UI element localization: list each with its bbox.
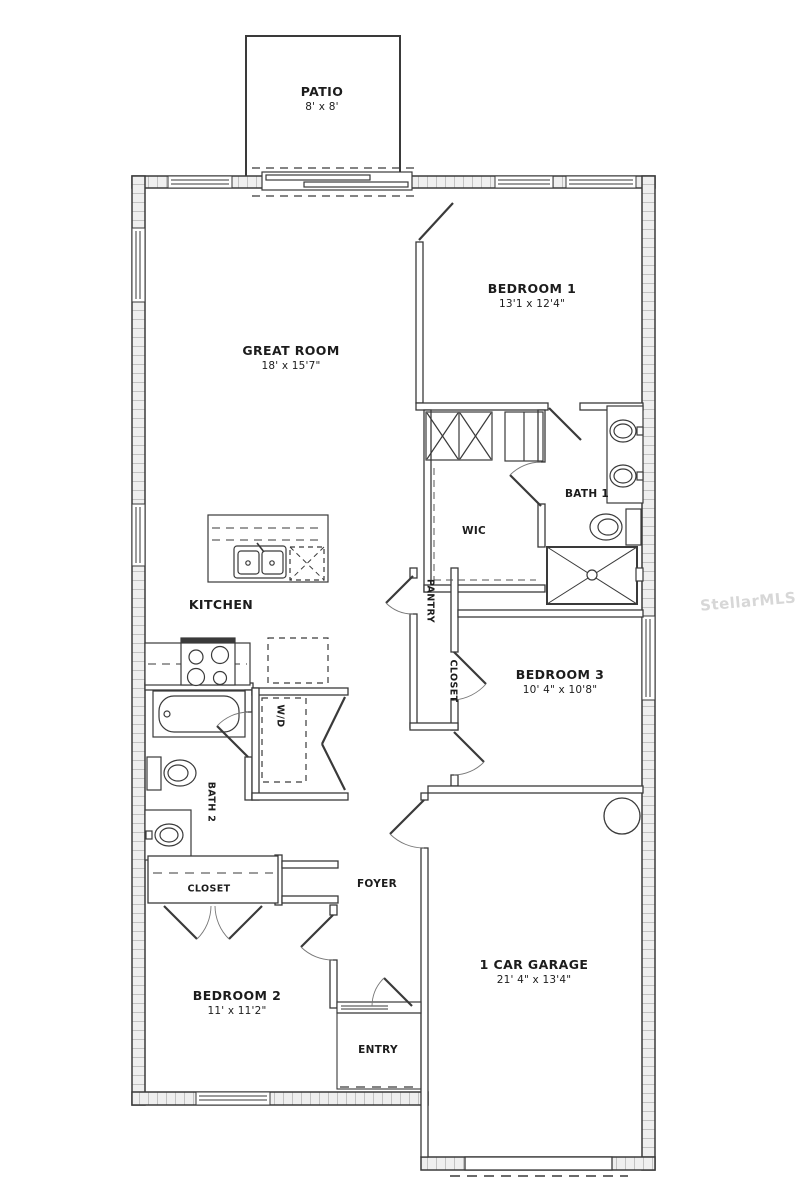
pantry-label: PANTRY [425, 579, 436, 623]
room-name: GREAT ROOM [242, 344, 339, 358]
entry-label: ENTRY [358, 1044, 398, 1056]
room-name: 1 CAR GARAGE [480, 958, 589, 972]
bedroom2-label: BEDROOM 2 11' x 11'2" [193, 989, 281, 1017]
bath1-label: BATH 1 [565, 488, 609, 500]
bath2-label: BATH 2 [206, 782, 217, 823]
bedroom1-label: BEDROOM 1 13'1 x 12'4" [488, 282, 576, 310]
room-name: BEDROOM 1 [488, 282, 576, 296]
room-name: BEDROOM 2 [193, 989, 281, 1003]
hall-closet-label: CLOSET [188, 885, 231, 896]
room-name: ENTRY [358, 1044, 398, 1056]
room-name: BATH 1 [565, 488, 609, 500]
foyer-label: FOYER [357, 878, 397, 890]
room-dims: 8' x 8' [301, 101, 344, 113]
garage-label: 1 CAR GARAGE 21' 4" x 13'4" [480, 958, 589, 986]
room-dims: 10' 4" x 10'8" [516, 684, 604, 696]
room-name: WIC [462, 525, 486, 537]
bedroom3-closet-label: CLOSET [448, 660, 459, 703]
patio-label: PATIO 8' x 8' [301, 85, 344, 113]
room-dims: 11' x 11'2" [193, 1005, 281, 1017]
room-name: KITCHEN [189, 598, 253, 612]
room-name: CLOSET [188, 885, 231, 896]
room-labels: PATIO 8' x 8' GREAT ROOM 18' x 15'7" BED… [0, 0, 800, 1200]
room-name: BEDROOM 3 [516, 668, 604, 682]
room-name: FOYER [357, 878, 397, 890]
floor-plan-canvas: PATIO 8' x 8' GREAT ROOM 18' x 15'7" BED… [0, 0, 800, 1200]
room-dims: 18' x 15'7" [242, 360, 339, 372]
room-dims: 21' 4" x 13'4" [480, 974, 589, 986]
wic-label: WIC [462, 525, 486, 537]
room-dims: 13'1 x 12'4" [488, 298, 576, 310]
room-name: PATIO [301, 85, 344, 99]
kitchen-label: KITCHEN [189, 598, 253, 612]
bedroom3-label: BEDROOM 3 10' 4" x 10'8" [516, 668, 604, 696]
laundry-label: W/D [275, 704, 286, 727]
great-room-label: GREAT ROOM 18' x 15'7" [242, 344, 339, 372]
